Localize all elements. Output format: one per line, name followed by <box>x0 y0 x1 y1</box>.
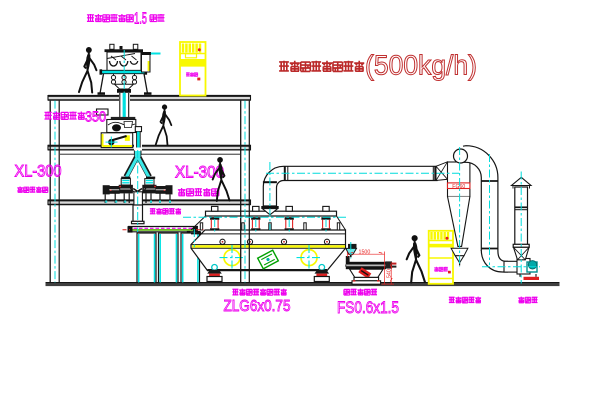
svg-text:350: 350 <box>85 109 106 126</box>
svg-text:ZLG6x0.75: ZLG6x0.75 <box>224 298 291 315</box>
svg-text:FG60: FG60 <box>452 184 465 190</box>
svg-text:FS0.6x1.5: FS0.6x1.5 <box>337 299 399 317</box>
svg-text:540: 540 <box>386 269 392 278</box>
svg-text:1500: 1500 <box>359 249 371 255</box>
svg-text:1.5: 1.5 <box>134 11 147 28</box>
svg-text:XL-300: XL-300 <box>15 162 62 181</box>
svg-text:(500kg/h): (500kg/h) <box>365 50 477 81</box>
